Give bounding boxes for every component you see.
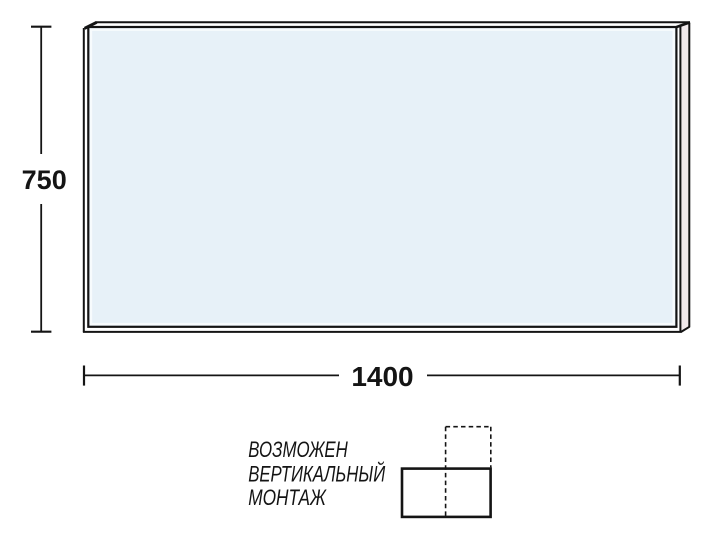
svg-text:МОНТАЖ: МОНТАЖ xyxy=(248,485,327,510)
svg-text:ВЕРТИКАЛЬНЫЙ: ВЕРТИКАЛЬНЫЙ xyxy=(248,461,385,487)
svg-text:750: 750 xyxy=(22,165,67,195)
svg-text:1400: 1400 xyxy=(351,361,413,392)
svg-text:ВОЗМОЖЕН: ВОЗМОЖЕН xyxy=(248,437,348,462)
